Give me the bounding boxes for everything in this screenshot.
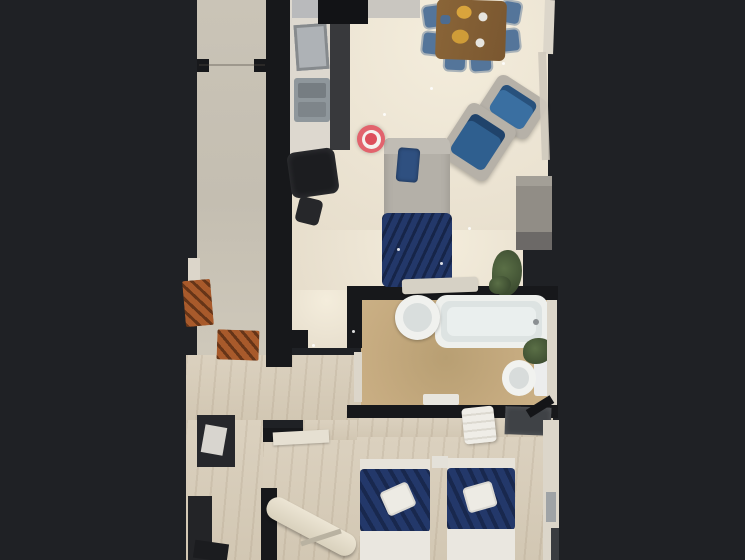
nightstand [432,456,448,468]
bathroom-door [354,352,362,402]
kitchen-sink [294,78,330,122]
doormat-front-door [182,279,214,327]
coffee-bench [402,277,478,295]
toilet [502,360,536,396]
floor-sparkle [312,344,315,347]
floor-sparkle [468,227,471,230]
counter-piece-top [368,0,420,18]
table-napkin [440,15,450,24]
kitchen-island-top [318,0,368,24]
floor-sparkle [397,248,400,251]
navy-blanket [382,213,452,287]
sink-basin-2 [298,102,326,117]
bathtub-drain [533,319,539,325]
bathtub-basin-highlight [447,307,536,336]
table-food [452,29,469,44]
position-marker-ring [362,130,381,149]
black-chair [286,147,340,199]
towel-stack [461,405,497,444]
bedroom-right-wall-patch [546,492,556,522]
bath-mat [423,394,459,405]
dark-cabinet-small [193,540,229,560]
floor-sparkle [383,113,386,116]
wall-bathroom-left [347,298,362,348]
floorplan-viewer [0,0,745,560]
table-flowers [456,5,471,19]
bed-sheet [447,529,515,560]
floor-sparkle [430,87,433,90]
wash-basin-bowl [403,303,432,332]
bed-sheet [360,531,430,560]
table-plate [478,12,487,21]
wardrobe [197,415,235,467]
blue-cushion [396,147,421,183]
shelf [516,176,552,250]
position-marker[interactable] [357,125,385,153]
wash-basin [395,295,440,340]
floor-sparkle [352,330,355,333]
doormat-hallway [216,329,259,360]
twin-bed [360,459,430,560]
living-right-wall [543,0,555,54]
floor-sparkle [502,62,505,65]
dining-table [435,0,507,61]
bathroom-right-wall [547,300,557,405]
position-marker-center [365,133,377,145]
hallway-floor-seam [199,64,265,66]
table-plate [475,38,484,47]
toilet-bowl [509,367,529,389]
floor-sparkle [440,262,443,265]
wall-living-bottom-tab [286,330,308,348]
wardrobe-paper [201,424,228,455]
sink-basin [298,83,326,98]
dish-rack [293,23,329,71]
twin-bed [447,458,515,560]
wall-hallway-living [266,0,292,367]
bedroom-right-wall-dark [551,528,559,560]
